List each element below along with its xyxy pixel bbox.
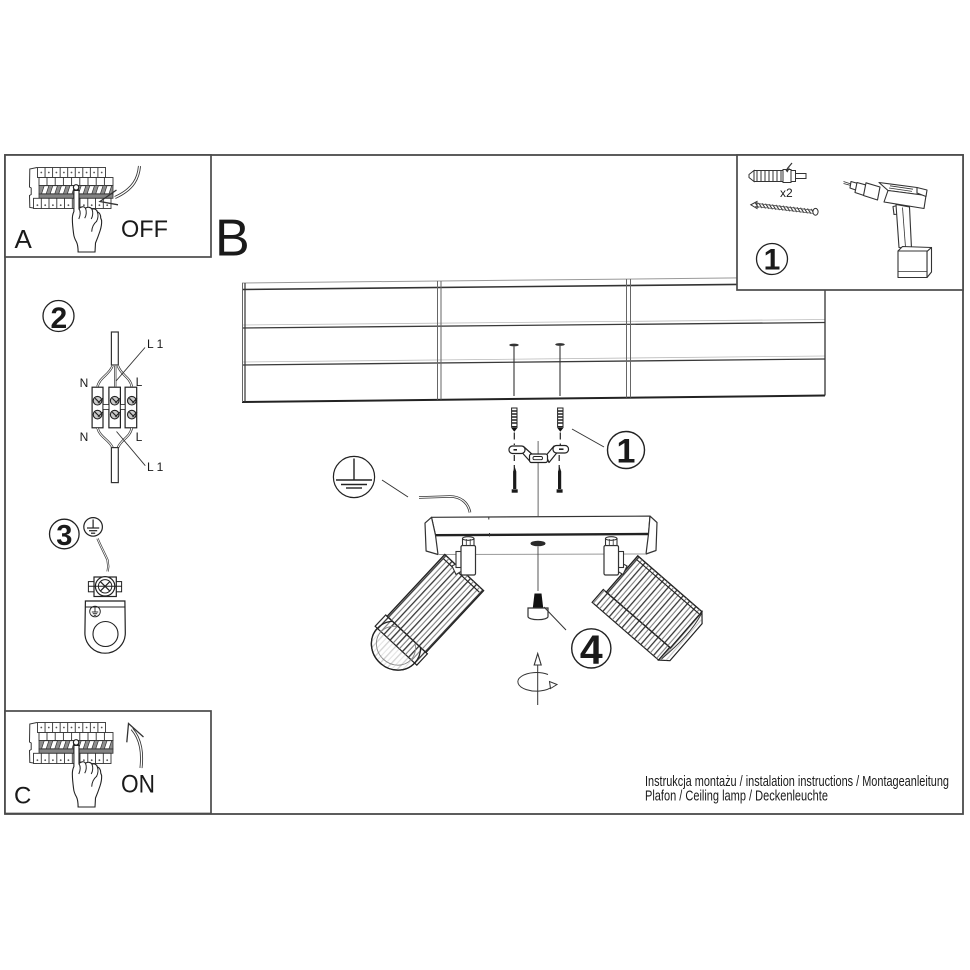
svg-text:L 1: L 1 <box>147 337 164 351</box>
svg-text:C: C <box>14 783 31 810</box>
svg-text:1: 1 <box>764 244 781 277</box>
svg-text:L: L <box>136 375 143 389</box>
svg-text:OFF: OFF <box>121 216 168 243</box>
svg-text:N: N <box>80 376 89 390</box>
svg-text:1: 1 <box>617 433 636 471</box>
svg-text:2: 2 <box>50 302 67 335</box>
svg-text:L 1: L 1 <box>147 460 164 474</box>
svg-text:4: 4 <box>580 627 603 673</box>
svg-text:3: 3 <box>56 520 72 552</box>
svg-text:x2: x2 <box>780 186 793 200</box>
svg-text:Plafon / Ceiling lamp / Decken: Plafon / Ceiling lamp / Deckenleuchte <box>645 788 828 805</box>
svg-text:N: N <box>80 430 89 444</box>
svg-text:L: L <box>136 430 143 444</box>
svg-text:B: B <box>215 210 250 268</box>
svg-text:ON: ON <box>121 771 155 799</box>
svg-text:A: A <box>15 224 33 254</box>
